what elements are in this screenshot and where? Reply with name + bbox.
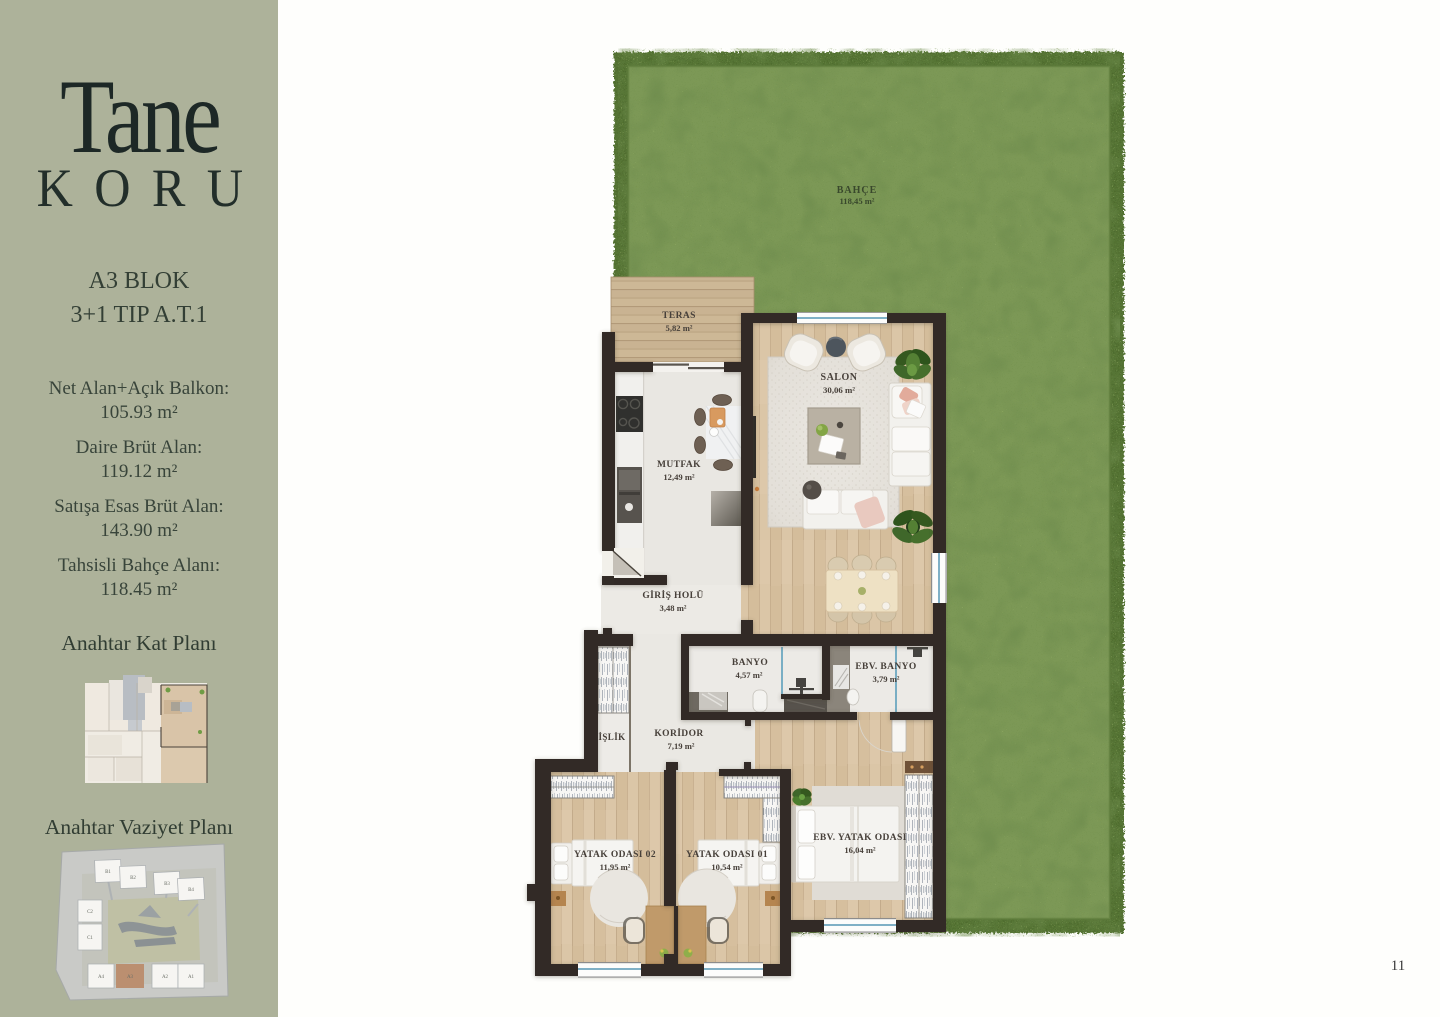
- svg-text:118,45 m²: 118,45 m²: [839, 196, 874, 206]
- svg-text:EBV. YATAK ODASI: EBV. YATAK ODASI: [813, 833, 907, 843]
- svg-text:TERAS: TERAS: [662, 311, 696, 321]
- svg-text:5,82 m²: 5,82 m²: [666, 323, 693, 333]
- svg-text:YATAK ODASI 01: YATAK ODASI 01: [686, 850, 768, 860]
- svg-text:7,19 m²: 7,19 m²: [668, 741, 695, 751]
- svg-text:4,57 m²: 4,57 m²: [736, 670, 763, 680]
- svg-text:10,54 m²: 10,54 m²: [711, 862, 743, 872]
- svg-text:EBV. BANYO: EBV. BANYO: [855, 662, 916, 672]
- svg-text:12,49 m²: 12,49 m²: [663, 472, 695, 482]
- svg-text:YATAK ODASI 02: YATAK ODASI 02: [574, 850, 656, 860]
- svg-text:BANYO: BANYO: [732, 658, 768, 668]
- svg-text:30,06 m²: 30,06 m²: [823, 385, 855, 395]
- svg-text:MUTFAK: MUTFAK: [657, 460, 701, 470]
- svg-text:3,79 m²: 3,79 m²: [873, 674, 900, 684]
- svg-text:BAHÇE: BAHÇE: [837, 185, 878, 196]
- svg-text:11,95 m²: 11,95 m²: [600, 862, 631, 872]
- svg-text:İŞLİK: İŞLİK: [598, 732, 625, 742]
- svg-text:KORİDOR: KORİDOR: [654, 727, 703, 739]
- svg-text:SALON: SALON: [821, 372, 858, 383]
- svg-text:16,04 m²: 16,04 m²: [844, 845, 876, 855]
- svg-text:3,48 m²: 3,48 m²: [660, 603, 687, 613]
